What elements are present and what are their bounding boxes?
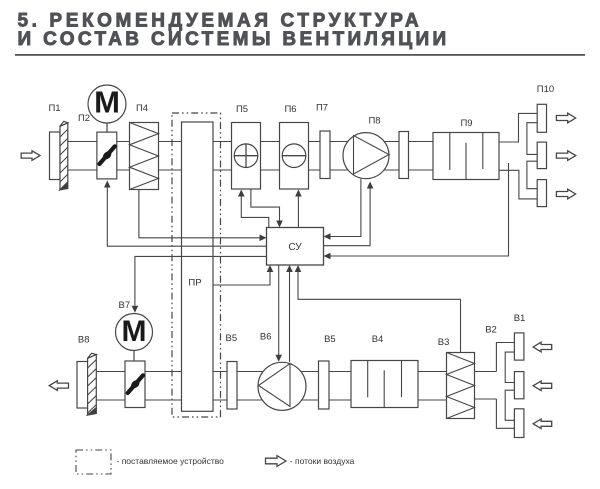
svg-text:П5: П5 [236, 104, 248, 115]
svg-text:П8: П8 [368, 116, 380, 127]
svg-text:В5: В5 [324, 334, 336, 345]
svg-text:ПР: ПР [188, 278, 201, 289]
svg-text:М: М [122, 315, 147, 348]
svg-text:- потоки воздуха: - потоки воздуха [290, 456, 355, 466]
svg-text:В5: В5 [225, 333, 237, 344]
svg-text:П6: П6 [284, 104, 296, 115]
svg-text:В6: В6 [260, 332, 272, 343]
svg-text:- поставляемое устройство: - поставляемое устройство [117, 456, 225, 466]
svg-text:В2: В2 [485, 325, 497, 336]
svg-text:П10: П10 [537, 84, 554, 95]
svg-text:И СОСТАВ СИСТЕМЫ ВЕНТИЛЯЦИИ: И СОСТАВ СИСТЕМЫ ВЕНТИЛЯЦИИ [18, 29, 450, 50]
svg-text:П2: П2 [78, 113, 90, 124]
svg-text:М: М [94, 85, 120, 120]
svg-text:СУ: СУ [288, 242, 302, 253]
svg-text:П1: П1 [48, 103, 60, 114]
svg-text:П4: П4 [136, 103, 148, 114]
svg-text:В1: В1 [514, 313, 526, 324]
svg-text:П7: П7 [316, 103, 328, 114]
svg-text:В7: В7 [118, 300, 130, 311]
svg-text:В8: В8 [78, 335, 90, 346]
svg-text:В3: В3 [438, 337, 450, 348]
svg-text:П9: П9 [460, 118, 472, 129]
svg-text:В4: В4 [372, 334, 384, 345]
